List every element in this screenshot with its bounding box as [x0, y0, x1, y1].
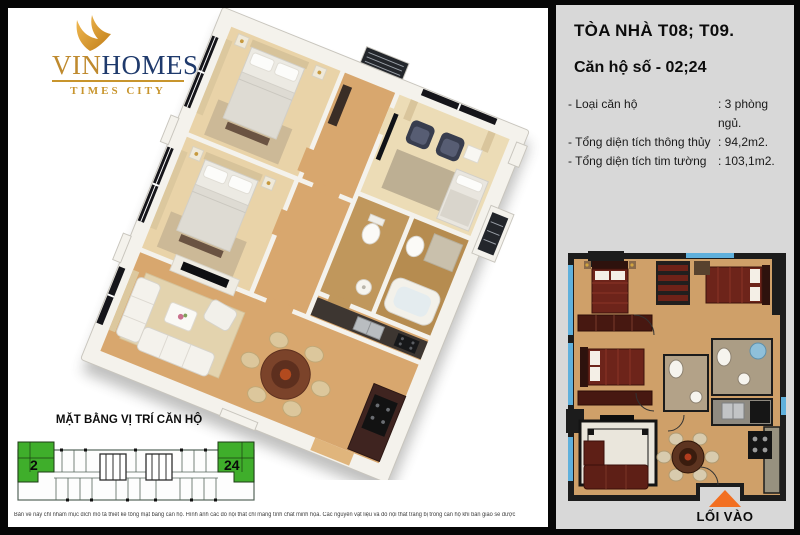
- detail-label: - Loại căn hộ: [568, 95, 718, 133]
- detail-list: - Loại căn hộ : 3 phòng ngủ. - Tổng diện…: [568, 95, 790, 171]
- 2d-kitchen-counter: [712, 399, 772, 425]
- floorplan-2d: [566, 251, 788, 503]
- detail-row: - Loại căn hộ : 3 phòng ngủ.: [568, 95, 790, 133]
- detail-row: - Tổng diện tích thông thủy : 94,2m2.: [568, 133, 790, 152]
- detail-value: : 94,2m2.: [718, 133, 790, 152]
- unit-number: Căn hộ số - 02;24: [574, 59, 706, 77]
- unit-right-number: 24: [224, 457, 240, 473]
- 2d-bathroom-2: [712, 339, 772, 395]
- building-title: TÒA NHÀ T08; T09.: [574, 21, 734, 41]
- detail-row: - Tổng diện tích tim tường : 103,1m2.: [568, 152, 790, 171]
- detail-label: - Tổng diện tích tim tường: [568, 152, 718, 171]
- info-panel: TÒA NHÀ T08; T09. Căn hộ số - 02;24 - Lo…: [556, 5, 794, 529]
- 2d-bedroom-c: [578, 347, 652, 405]
- detail-value: : 3 phòng ngủ.: [718, 95, 790, 133]
- location-map: 2 24: [16, 438, 256, 506]
- location-title: MẶT BẰNG VỊ TRÍ CĂN HỘ: [44, 414, 214, 426]
- 2d-closet: [656, 261, 690, 305]
- floorplan-3d: [58, 8, 553, 480]
- detail-label: - Tổng diện tích thông thủy: [568, 133, 718, 152]
- unit-left-number: 2: [30, 457, 38, 473]
- brochure-main-panel: VINHOMES TIMES CITY: [8, 8, 548, 527]
- disclaimer-text: Bản vẽ này chỉ nhằm mục đích mô tả thiết…: [14, 512, 516, 518]
- detail-value: : 103,1m2.: [718, 152, 790, 171]
- 2d-living-room: [580, 415, 656, 489]
- entrance-marker: LỐI VÀO: [670, 490, 780, 524]
- entrance-arrow-icon: [709, 490, 741, 507]
- entrance-label: LỐI VÀO: [670, 509, 780, 524]
- 2d-bathroom-1: [664, 355, 708, 411]
